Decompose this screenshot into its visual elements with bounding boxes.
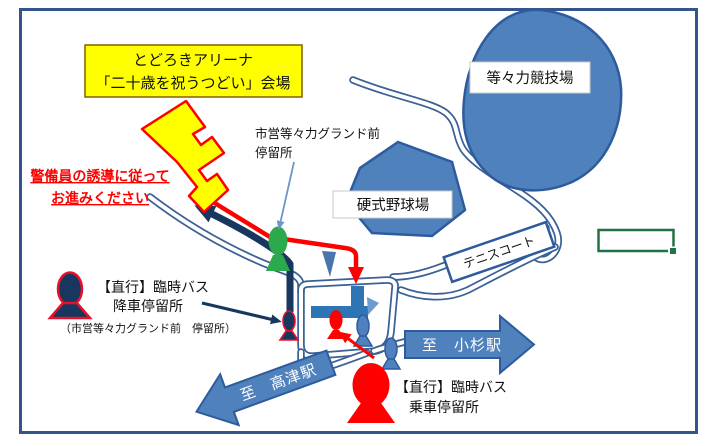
excel-fill-handle[interactable] <box>670 248 677 255</box>
alight-stop-line1: 【直行】臨時バス <box>97 279 209 295</box>
athletics-stadium-label-box: 等々力競技場 <box>470 62 590 93</box>
board-legend-person-icon <box>353 363 390 407</box>
baseball-field-label-box: 硬式野球場 <box>333 191 452 218</box>
board-stop-line1: 【直行】臨時バス <box>395 379 507 395</box>
to-kosugi-label: 至 小杉駅 <box>422 337 502 354</box>
excel-cell-cursor[interactable] <box>599 230 678 256</box>
warning-line2: お進みください <box>51 190 149 206</box>
venue-title-line2: 「二十歳を祝うつどい」会場 <box>95 75 290 92</box>
baseball-field-label: 硬式野球場 <box>357 197 430 214</box>
alight-stop-line2: 降車停留所 <box>113 298 183 314</box>
venue-title-line1: とどろきアリーナ <box>133 52 253 69</box>
access-map: テニスコート 至 小杉駅 至 高津駅 <box>0 0 710 446</box>
alight-legend-person-icon <box>58 273 82 306</box>
venue-title-box: とどろきアリーナ 「二十歳を祝うつどい」会場 <box>85 45 302 97</box>
athletics-stadium-label: 等々力競技場 <box>487 69 574 87</box>
alight-stop-line3: （市営等々力グランド前 停留所） <box>60 321 236 335</box>
board-stop-line2: 乗車停留所 <box>409 399 479 415</box>
grand-mae-stop-line2: 停留所 <box>255 145 293 160</box>
warning-line1: 警備員の誘導に従って <box>30 168 169 184</box>
grand-mae-stop-line1: 市営等々力グランド前 <box>255 126 380 141</box>
athletics-stadium-shape <box>463 10 621 190</box>
